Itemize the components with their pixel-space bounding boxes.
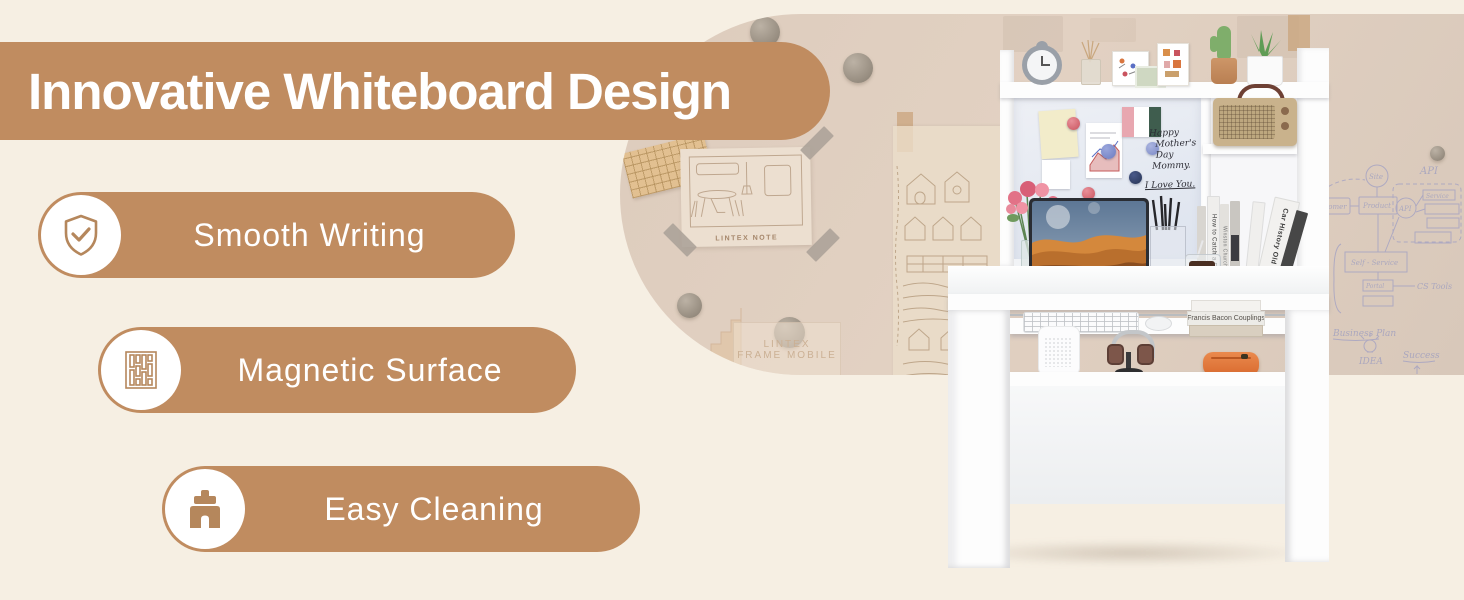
whiteboard-magnet-navy [1129, 171, 1142, 184]
pouch-button [1241, 354, 1248, 359]
feature-icon-circle [101, 330, 181, 410]
feature-pill-easy-cleaning: Easy Cleaning [162, 466, 640, 552]
wall-frame-caption: FRAME MOBILE [737, 350, 837, 361]
wall-frame-caption: LINTEX [763, 339, 810, 350]
whiteboard-magnet-red [1067, 117, 1080, 130]
cactus-body [1217, 26, 1231, 62]
svg-text:Success: Success [1403, 351, 1440, 361]
svg-text:Product: Product [1362, 202, 1391, 210]
svg-text:CS Tools: CS Tools [1417, 282, 1452, 291]
alarm-clock [1022, 41, 1062, 83]
cactus-arm [1210, 36, 1218, 52]
desk-left-leg [948, 310, 1010, 568]
feature-pill-smooth-writing: Smooth Writing [38, 192, 515, 278]
swatch-pink [1122, 107, 1134, 137]
magnetic-surface-icon [118, 347, 164, 393]
radio-body [1213, 98, 1297, 146]
svg-text:Portal: Portal [1365, 283, 1384, 290]
cactus-plant [1209, 26, 1239, 84]
svg-text:API: API [1398, 205, 1412, 213]
white-pot [1247, 56, 1283, 86]
desk-top [948, 266, 1329, 296]
mouse [1145, 316, 1172, 331]
feature-icon-circle [41, 195, 121, 275]
feature-label: Magnetic Surface [184, 327, 556, 413]
air-purifier [1038, 326, 1080, 376]
feature-pill-magnetic-surface: Magnetic Surface [98, 327, 576, 413]
reed-diffuser [1078, 40, 1102, 83]
cleaning-brush-icon [182, 486, 228, 532]
svg-text:Service: Service [1426, 193, 1449, 200]
whiteboard-magnet-blue [1101, 144, 1116, 159]
ear-cup [1107, 344, 1124, 365]
radio-knob [1281, 122, 1289, 130]
desk-back-panel [1010, 386, 1287, 504]
terracotta-pot [1211, 58, 1237, 84]
svg-text:Business Plan: Business Plan [1332, 329, 1396, 339]
feature-icon-circle [165, 469, 245, 549]
desk-top-front-edge [948, 294, 1329, 310]
svg-text:Self - Service: Self - Service [1351, 259, 1398, 267]
vintage-radio [1213, 84, 1297, 146]
diffuser-bottle [1081, 59, 1101, 85]
marketing-banner: LINTEX NOTE LINTEX FRAME MOBILE [0, 0, 1464, 600]
ear-cup [1137, 344, 1154, 365]
wall-frame-print: LINTEX FRAME MOBILE [733, 322, 841, 375]
desk-product-photo: Happy Mother's Day Mommy. I Love You. [945, 14, 1337, 570]
picture-frame-tall [1157, 43, 1189, 86]
aloe-plant [1243, 30, 1285, 84]
headphones-on-stand [1103, 330, 1155, 376]
desk-right-leg [1285, 310, 1329, 562]
tray-book-stack: Francis Bacon Couplings [1185, 300, 1265, 338]
feature-label: Easy Cleaning [248, 466, 620, 552]
interior-sketch-drawing [680, 149, 811, 235]
radio-knob [1281, 107, 1289, 115]
wall-magnet [843, 53, 873, 83]
title-banner: Innovative Whiteboard Design [0, 42, 830, 140]
page-title: Innovative Whiteboard Design [0, 62, 731, 121]
feature-label: Smooth Writing [124, 192, 495, 278]
clock-hand-hour [1042, 64, 1050, 66]
stacked-book-titled: Francis Bacon Couplings [1187, 311, 1265, 326]
interior-sketch-note: LINTEX NOTE [680, 147, 812, 247]
lower-shelf [1010, 372, 1287, 386]
stacked-book [1189, 325, 1263, 337]
svg-text:Site: Site [1369, 173, 1383, 181]
svg-text:API: API [1419, 166, 1439, 177]
purifier-vents [1044, 337, 1072, 367]
svg-text:IDEA: IDEA [1358, 357, 1383, 367]
radio-speaker-grille [1219, 105, 1275, 139]
shield-check-icon [58, 212, 104, 258]
wall-note-caption: LINTEX NOTE [682, 234, 812, 243]
